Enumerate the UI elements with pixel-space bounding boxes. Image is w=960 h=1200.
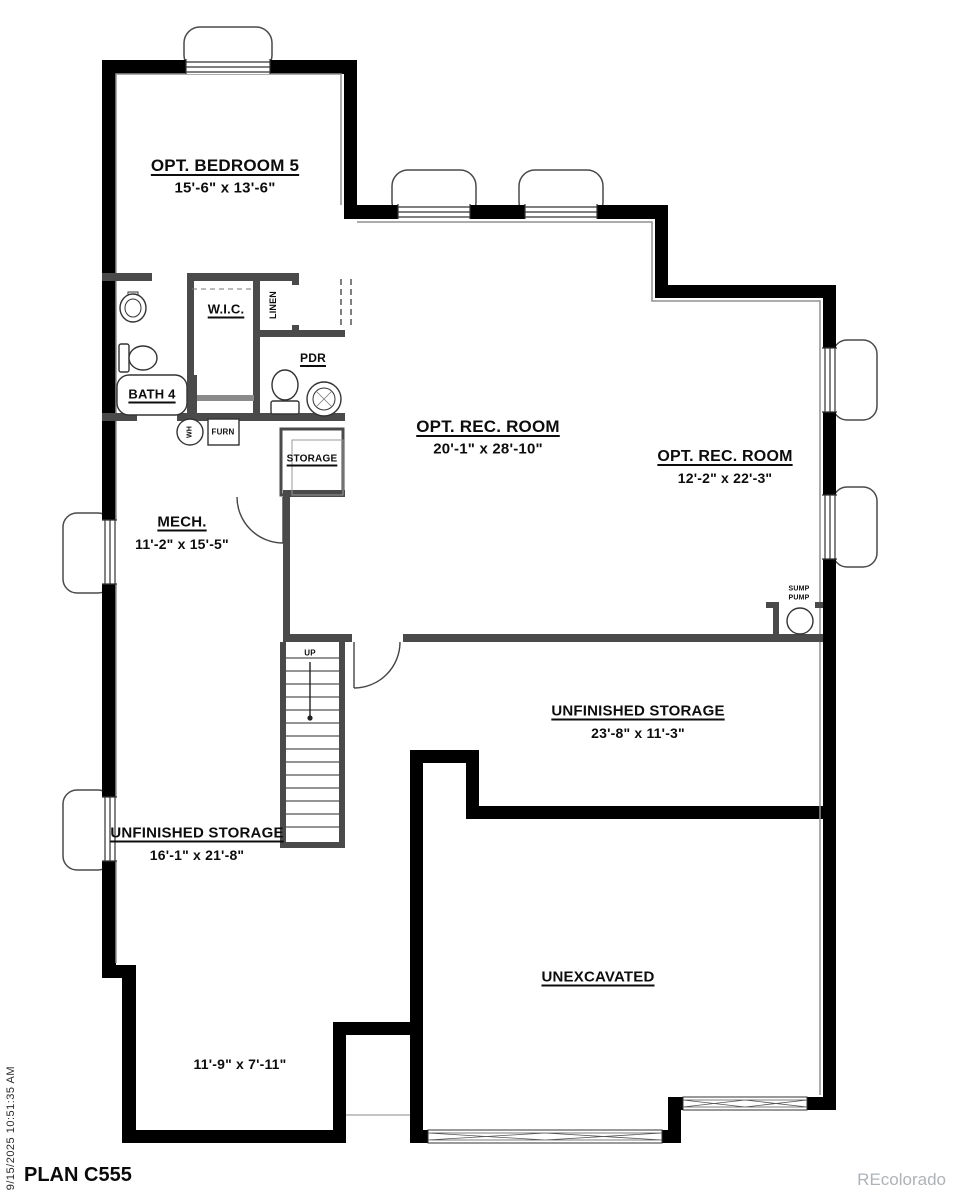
sump-pump-label: SUMP PUMP [778, 585, 820, 603]
door-under-stairs [354, 642, 400, 688]
doors [237, 497, 400, 688]
window-rec-left [398, 204, 470, 219]
room-label-bath-4: BATH 4 [128, 387, 175, 402]
room-label-opt-bedroom-5: OPT. BEDROOM 5 [151, 156, 299, 176]
room-label-unexcavated: UNEXCAVATED [541, 969, 654, 986]
window-well-east-lower [833, 487, 877, 567]
room-label-rec-room-side: OPT. REC. ROOM [657, 448, 792, 466]
pdr-toilet-icon [271, 370, 299, 414]
room-dims-rec-room-side: 12'-2" x 22'-3" [678, 470, 773, 486]
window-east-lower [822, 495, 837, 559]
stairs-up-label: UP [304, 649, 316, 658]
bath4-toilet-icon [119, 344, 157, 372]
cased-opening-hall [341, 279, 351, 329]
recolorado-watermark: REcolorado [857, 1170, 946, 1190]
stairs [286, 658, 339, 827]
print-timestamp: 9/15/2025 10:51:35 AM [5, 1066, 17, 1190]
room-label-unfinished-storage-left: UNFINISHED STORAGE [110, 825, 283, 842]
window-west-upper [102, 520, 117, 584]
pdr-sink-icon [307, 382, 341, 416]
room-label-mech: MECH. [157, 514, 206, 531]
window-east-upper [822, 348, 837, 412]
door-mech-room [237, 497, 283, 543]
bath4-sink-icon [120, 292, 146, 322]
vent-bottom-long [428, 1130, 662, 1143]
vent-bottom-short [683, 1097, 807, 1110]
room-label-linen: LINEN [268, 291, 278, 319]
room-dims-opt-bedroom-5: 15'-6" x 13'-6" [174, 180, 275, 197]
room-label-rec-room-main: OPT. REC. ROOM [416, 417, 560, 437]
room-dims-mech: 11'-2" x 15'-5" [135, 536, 229, 552]
stair-treads [286, 658, 339, 827]
foundation-vents [428, 1097, 807, 1143]
room-dims-unfinished-storage-left: 16'-1" x 21'-8" [150, 847, 245, 863]
room-label-unfinished-storage-right: UNFINISHED STORAGE [551, 703, 724, 720]
room-label-pdr: PDR [300, 351, 326, 365]
inner-face-lines [116, 74, 820, 1115]
stair-arrow-dot [307, 715, 312, 720]
sump-pump-icon [787, 608, 813, 634]
furnace-label: FURN [211, 428, 234, 437]
room-dims-unfinished-storage-right: 23'-8" x 11'-3" [591, 725, 685, 741]
room-dims-rec-room-main: 20'-1" x 28'-10" [433, 441, 543, 458]
plan-title: PLAN C555 [24, 1164, 132, 1187]
room-dims-crawl-area: 11'-9" x 7'-11" [194, 1056, 287, 1072]
window-rec-right [525, 204, 597, 219]
room-label-wic: W.I.C. [208, 302, 245, 317]
room-label-storage: STORAGE [287, 454, 338, 465]
water-heater-label: WH [187, 426, 194, 438]
floor-plan: OPT. BEDROOM 5 15'-6" x 13'-6" W.I.C. LI… [0, 0, 960, 1200]
window-top-bedroom [186, 59, 270, 74]
window-well-east-upper [833, 340, 877, 420]
